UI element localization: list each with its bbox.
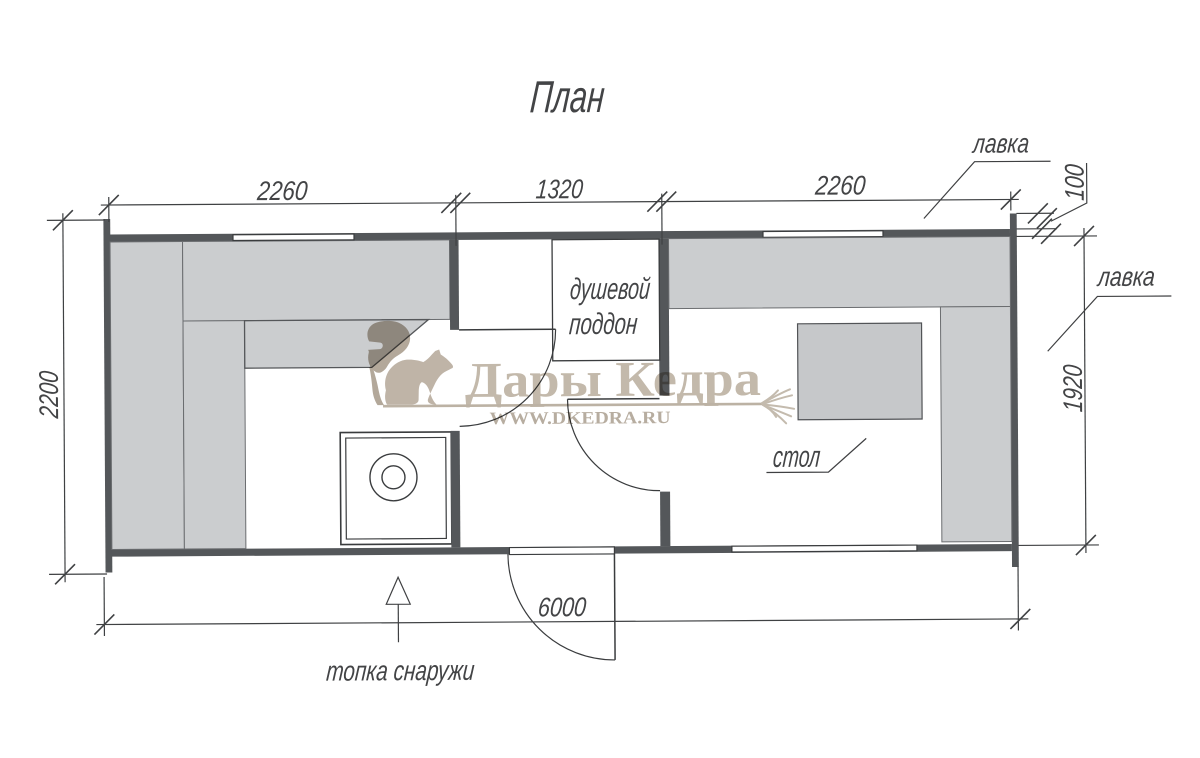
svg-text:поддон: поддон	[568, 308, 639, 341]
svg-text:лавка: лавка	[1095, 262, 1156, 292]
svg-text:6000: 6000	[537, 592, 587, 622]
svg-text:стол: стол	[772, 441, 822, 474]
svg-text:2200: 2200	[34, 370, 64, 420]
svg-text:2260: 2260	[255, 176, 308, 206]
svg-text:WWW.DKEDRA.RU: WWW.DKEDRA.RU	[490, 407, 672, 428]
svg-text:2260: 2260	[813, 170, 866, 200]
svg-text:Дары Кедра: Дары Кедра	[465, 350, 761, 408]
svg-text:1920: 1920	[1058, 364, 1088, 413]
svg-text:План: План	[528, 71, 606, 122]
svg-text:1320: 1320	[535, 174, 584, 204]
svg-text:лавка: лавка	[970, 128, 1030, 158]
svg-text:топка снаружи: топка снаружи	[325, 655, 476, 687]
svg-text:душевой: душевой	[569, 273, 652, 306]
svg-text:100: 100	[1060, 163, 1090, 201]
